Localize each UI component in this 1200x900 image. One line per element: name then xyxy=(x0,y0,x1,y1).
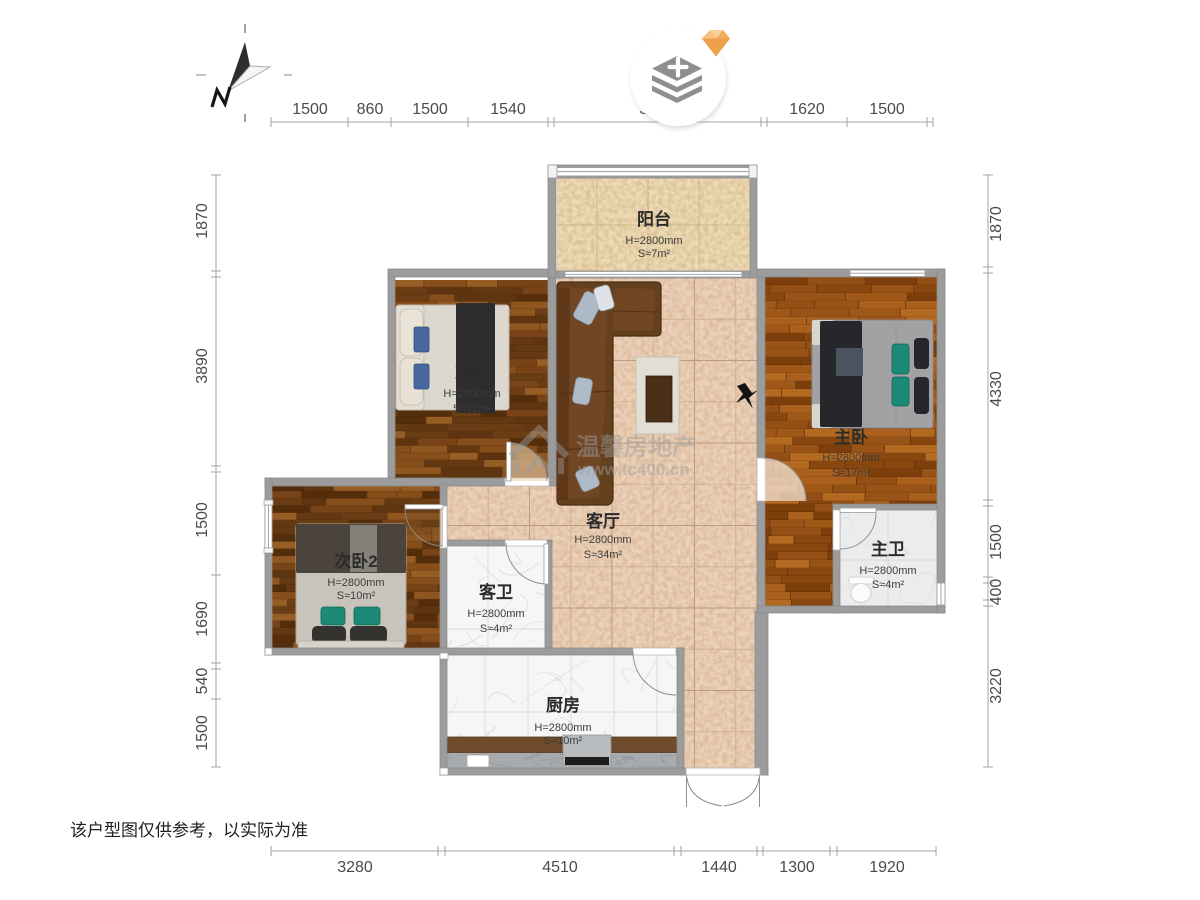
svg-text:次卧2: 次卧2 xyxy=(334,551,377,571)
svg-text:阳台: 阳台 xyxy=(637,209,671,229)
svg-text:1300: 1300 xyxy=(779,859,815,876)
svg-text:3280: 3280 xyxy=(337,859,373,876)
svg-text:客卫: 客卫 xyxy=(478,582,513,602)
svg-text:S≈4m²: S≈4m² xyxy=(872,579,905,591)
svg-text:1540: 1540 xyxy=(490,101,526,118)
svg-text:3220: 3220 xyxy=(988,668,1005,704)
svg-text:主卧: 主卧 xyxy=(834,427,868,447)
svg-text:H=2800mm: H=2800mm xyxy=(822,452,879,464)
svg-text:S≈10m²: S≈10m² xyxy=(544,735,583,747)
svg-text:H=2800mm: H=2800mm xyxy=(574,534,631,546)
svg-text:厨房: 厨房 xyxy=(546,695,580,715)
svg-text:S≈7m²: S≈7m² xyxy=(638,248,671,260)
svg-text:1500: 1500 xyxy=(988,524,1005,560)
svg-text:H=2800mm: H=2800mm xyxy=(625,235,682,247)
svg-text:1870: 1870 xyxy=(988,206,1005,242)
svg-text:1870: 1870 xyxy=(194,203,211,239)
svg-text:1500: 1500 xyxy=(194,502,211,538)
svg-text:S≈12m²: S≈12m² xyxy=(453,403,492,415)
svg-text:H=2800mm: H=2800mm xyxy=(443,388,500,400)
svg-text:H=2800mm: H=2800mm xyxy=(467,608,524,620)
svg-text:H=2800mm: H=2800mm xyxy=(534,722,591,734)
svg-text:H=2800mm: H=2800mm xyxy=(859,565,916,577)
svg-text:S≈4m²: S≈4m² xyxy=(480,623,513,635)
svg-text:4510: 4510 xyxy=(542,859,578,876)
svg-text:主卫: 主卫 xyxy=(871,539,905,559)
svg-text:S≈10m²: S≈10m² xyxy=(337,590,376,602)
svg-text:1500: 1500 xyxy=(869,101,905,118)
svg-text:H=2800mm: H=2800mm xyxy=(327,577,384,589)
svg-text:www.tc400.cn: www.tc400.cn xyxy=(577,460,690,479)
svg-text:客厅: 客厅 xyxy=(585,511,620,531)
svg-text:1620: 1620 xyxy=(789,101,825,118)
svg-text:次卧: 次卧 xyxy=(455,363,489,383)
svg-text:400: 400 xyxy=(988,579,1005,606)
svg-text:S≈34m²: S≈34m² xyxy=(584,549,623,561)
svg-text:1500: 1500 xyxy=(292,101,328,118)
svg-text:该户型图仅供参考，以实际为准: 该户型图仅供参考，以实际为准 xyxy=(70,821,308,840)
svg-text:1500: 1500 xyxy=(412,101,448,118)
svg-text:3890: 3890 xyxy=(194,348,211,384)
svg-text:1690: 1690 xyxy=(194,601,211,637)
svg-text:S≈17m²: S≈17m² xyxy=(832,467,871,479)
svg-text:540: 540 xyxy=(194,668,211,695)
svg-text:1500: 1500 xyxy=(194,715,211,751)
svg-text:温馨房地产: 温馨房地产 xyxy=(576,433,696,461)
svg-text:4330: 4330 xyxy=(988,371,1005,407)
svg-text:1440: 1440 xyxy=(701,859,737,876)
svg-text:860: 860 xyxy=(357,101,384,118)
svg-text:1920: 1920 xyxy=(869,859,905,876)
